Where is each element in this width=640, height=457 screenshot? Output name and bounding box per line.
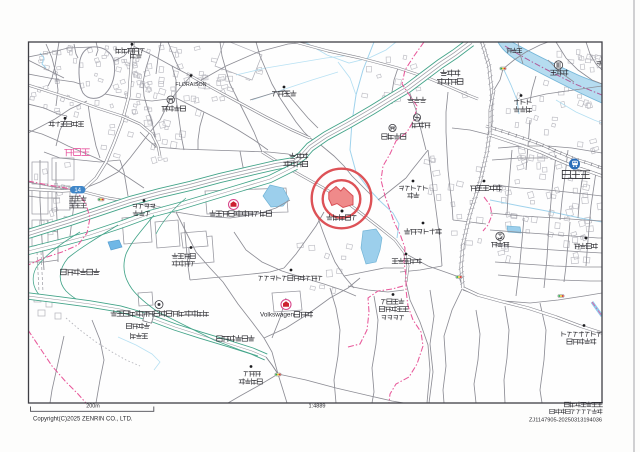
svg-text:1:4889: 1:4889 (308, 404, 325, 410)
svg-text:Volkswagen: Volkswagen (260, 311, 295, 318)
svg-text:Copyright(C)2025 ZENRIN CO., L: Copyright(C)2025 ZENRIN CO., LTD. (33, 417, 133, 423)
svg-text:200m: 200m (86, 404, 100, 410)
svg-text:FLORAISON: FLORAISON (175, 82, 206, 88)
svg-text:14: 14 (74, 188, 81, 194)
svg-text:ZJ1147905-20250313194036: ZJ1147905-20250313194036 (529, 418, 602, 424)
